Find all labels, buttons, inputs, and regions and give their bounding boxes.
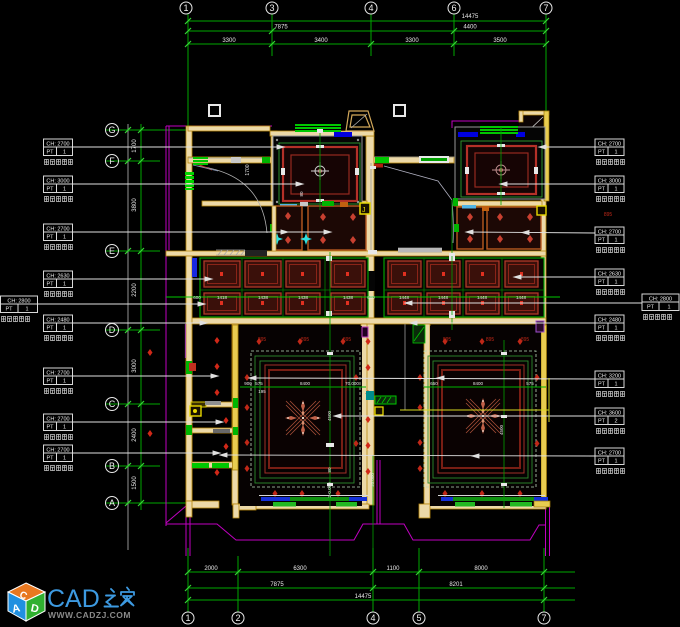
svg-text:PT: PT — [46, 379, 54, 385]
svg-text:PT: PT — [46, 326, 54, 332]
svg-text:PT: PT — [598, 419, 606, 425]
svg-text:3500: 3500 — [493, 38, 507, 44]
svg-text:CH: 2700: CH: 2700 — [46, 227, 69, 233]
svg-text:8000: 8000 — [474, 566, 488, 572]
svg-text:1448: 1448 — [438, 295, 449, 300]
svg-text:PT: PT — [46, 187, 54, 193]
svg-text:80: 80 — [327, 467, 332, 473]
svg-text:PT: PT — [46, 150, 54, 156]
svg-text:1: 1 — [25, 307, 28, 313]
svg-text:1448: 1448 — [516, 295, 527, 300]
svg-text:1438: 1438 — [298, 295, 309, 300]
svg-text:1: 1 — [614, 238, 617, 244]
svg-text:895: 895 — [521, 337, 530, 343]
svg-text:A: A — [109, 498, 115, 508]
svg-text:1: 1 — [63, 326, 66, 332]
svg-text:1: 1 — [614, 150, 617, 156]
svg-text:600: 600 — [367, 295, 375, 300]
svg-text:3800: 3800 — [132, 198, 138, 212]
svg-text:1: 1 — [63, 425, 66, 431]
svg-text:600: 600 — [193, 295, 201, 300]
svg-text:1: 1 — [63, 235, 66, 241]
svg-text:3300: 3300 — [405, 38, 419, 44]
svg-text:3400: 3400 — [314, 38, 328, 44]
svg-text:WWW.CADZJ.COM: WWW.CADZJ.COM — [48, 610, 131, 620]
svg-text:PT: PT — [598, 280, 606, 286]
svg-text:3300: 3300 — [222, 38, 236, 44]
svg-text:CH: 2480: CH: 2480 — [46, 318, 69, 324]
svg-text:4: 4 — [368, 3, 373, 13]
svg-text:2400: 2400 — [132, 428, 138, 442]
svg-text:1: 1 — [183, 3, 188, 13]
svg-text:6: 6 — [451, 3, 456, 13]
svg-text:1: 1 — [614, 459, 617, 465]
svg-text:C: C — [109, 399, 116, 409]
svg-text:1438: 1438 — [343, 295, 354, 300]
svg-text:CH: 2630: CH: 2630 — [598, 272, 621, 278]
svg-text:1700: 1700 — [132, 139, 138, 153]
svg-text:895: 895 — [486, 337, 495, 343]
svg-text:2200: 2200 — [132, 283, 138, 297]
svg-text:4500: 4500 — [327, 410, 332, 421]
svg-text:CH: 3000: CH: 3000 — [598, 179, 621, 185]
svg-text:4: 4 — [370, 613, 375, 623]
svg-text:CH: 3600: CH: 3600 — [598, 411, 621, 417]
svg-text:PT: PT — [598, 382, 606, 388]
svg-text:8400: 8400 — [300, 381, 311, 386]
svg-text:1: 1 — [63, 379, 66, 385]
svg-text:895: 895 — [301, 337, 310, 343]
svg-text:1448: 1448 — [399, 295, 410, 300]
svg-text:14475: 14475 — [355, 594, 372, 600]
svg-text:8201: 8201 — [449, 582, 463, 588]
svg-text:CH: 2800: CH: 2800 — [649, 297, 672, 303]
svg-text:F: F — [109, 156, 115, 166]
svg-text:1: 1 — [614, 187, 617, 193]
svg-text:PT: PT — [46, 282, 54, 288]
svg-text:1418: 1418 — [217, 295, 228, 300]
svg-text:PT: PT — [5, 307, 13, 313]
svg-text:CAD: CAD — [47, 585, 100, 613]
svg-text:CH: 2700: CH: 2700 — [46, 142, 69, 148]
svg-text:3000: 3000 — [132, 359, 138, 373]
svg-text:1: 1 — [614, 280, 617, 286]
svg-text:7875: 7875 — [270, 582, 284, 588]
svg-text:PT: PT — [598, 459, 606, 465]
svg-text:CH: 2700: CH: 2700 — [46, 371, 69, 377]
svg-text:1: 1 — [614, 382, 617, 388]
svg-text:1438: 1438 — [258, 295, 269, 300]
svg-text:575: 575 — [526, 381, 534, 386]
svg-text:2000: 2000 — [204, 566, 218, 572]
svg-text:895: 895 — [343, 337, 352, 343]
svg-text:1500: 1500 — [132, 476, 138, 490]
svg-text:±0.000: ±0.000 — [370, 473, 375, 487]
svg-text:1: 1 — [63, 150, 66, 156]
svg-text:900: 900 — [244, 381, 252, 386]
svg-text:6300: 6300 — [293, 566, 307, 572]
svg-text:1: 1 — [63, 456, 66, 462]
svg-text:CH: 2700: CH: 2700 — [46, 448, 69, 454]
svg-text:1: 1 — [63, 282, 66, 288]
svg-text:895: 895 — [258, 337, 267, 343]
svg-text:PT: PT — [46, 425, 54, 431]
svg-text:1: 1 — [667, 305, 670, 311]
svg-text:D: D — [109, 325, 116, 335]
svg-text:1: 1 — [185, 613, 190, 623]
svg-text:CH: 3200: CH: 3200 — [598, 374, 621, 380]
svg-text:PT: PT — [46, 456, 54, 462]
svg-text:CH: 2480: CH: 2480 — [598, 318, 621, 324]
svg-text:1: 1 — [63, 187, 66, 193]
svg-text:PT: PT — [46, 235, 54, 241]
svg-text:PT: PT — [647, 305, 655, 311]
svg-text:8400: 8400 — [473, 381, 484, 386]
svg-text:895: 895 — [604, 212, 613, 218]
svg-text:E: E — [109, 246, 115, 256]
svg-text:CH: 2700: CH: 2700 — [46, 417, 69, 423]
svg-text:7: 7 — [543, 3, 548, 13]
svg-text:CH: 3000: CH: 3000 — [46, 179, 69, 185]
svg-text:G: G — [108, 125, 115, 135]
svg-text:195: 195 — [258, 389, 266, 394]
svg-text:7: 7 — [541, 613, 546, 623]
svg-text:CH: 2700: CH: 2700 — [598, 230, 621, 236]
svg-text:PT: PT — [598, 326, 606, 332]
svg-text:PT: PT — [598, 150, 606, 156]
svg-text:B: B — [109, 461, 115, 471]
svg-text:4400: 4400 — [463, 25, 477, 31]
svg-text:2: 2 — [235, 613, 240, 623]
svg-text:80: 80 — [299, 191, 304, 197]
svg-text:650: 650 — [430, 381, 438, 386]
svg-text:5: 5 — [416, 613, 421, 623]
svg-text:PT: PT — [598, 187, 606, 193]
svg-text:CH: 2630: CH: 2630 — [46, 274, 69, 280]
svg-text:895: 895 — [443, 337, 452, 343]
svg-text:3: 3 — [269, 3, 274, 13]
svg-text:1700: 1700 — [245, 164, 251, 175]
svg-text:1: 1 — [614, 326, 617, 332]
svg-text:14475: 14475 — [462, 14, 479, 20]
svg-text:CH: 2700: CH: 2700 — [598, 142, 621, 148]
svg-text:575: 575 — [255, 381, 263, 386]
svg-text:70.000: 70.000 — [345, 381, 359, 386]
svg-text:J: J — [362, 207, 366, 214]
svg-text:CH: 2700: CH: 2700 — [598, 451, 621, 457]
svg-text:2: 2 — [614, 419, 617, 425]
svg-text:7875: 7875 — [274, 25, 288, 31]
svg-text:1448: 1448 — [477, 295, 488, 300]
svg-text:CH: 2800: CH: 2800 — [7, 299, 30, 305]
svg-text:4500: 4500 — [499, 424, 504, 435]
svg-text:PT: PT — [598, 238, 606, 244]
svg-text:1100: 1100 — [387, 566, 401, 572]
